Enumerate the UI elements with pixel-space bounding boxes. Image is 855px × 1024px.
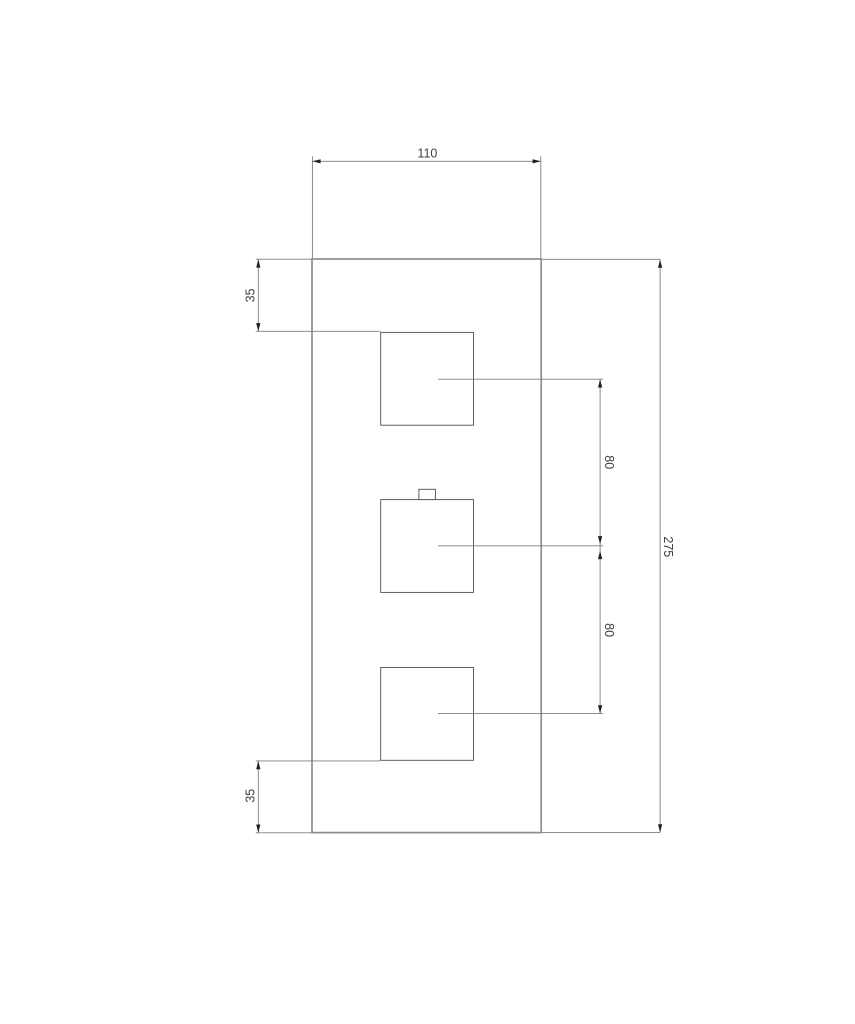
svg-text:35: 35	[243, 288, 257, 302]
svg-text:275: 275	[661, 536, 675, 557]
svg-text:80: 80	[602, 455, 616, 469]
svg-text:80: 80	[602, 623, 616, 637]
svg-text:110: 110	[417, 146, 437, 160]
svg-text:35: 35	[243, 789, 257, 803]
